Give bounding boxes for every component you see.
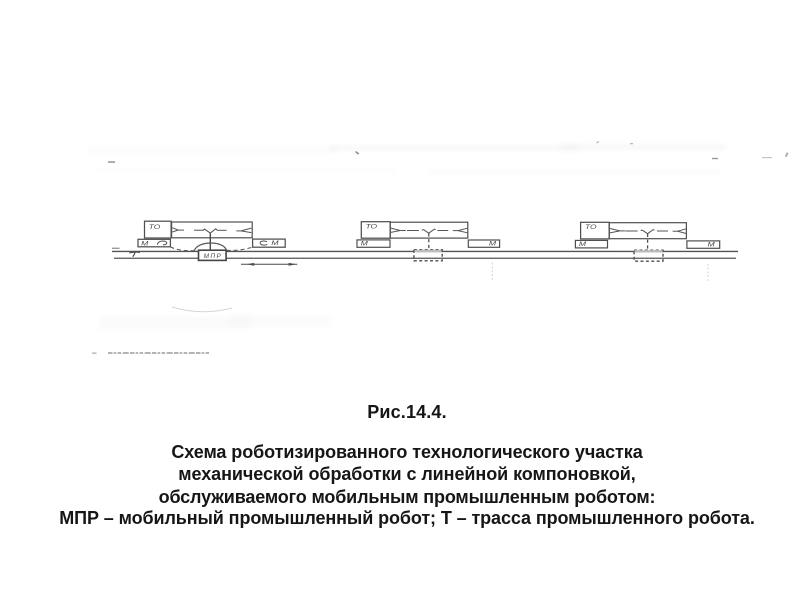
svg-text:М: М xyxy=(489,242,496,248)
svg-text:М: М xyxy=(271,241,278,247)
svg-text:М: М xyxy=(361,242,368,248)
svg-text:ТО: ТО xyxy=(149,224,161,231)
svg-text:М: М xyxy=(708,242,715,248)
svg-text:М: М xyxy=(141,241,148,247)
svg-text:ТО: ТО xyxy=(366,224,378,231)
svg-text:МПР: МПР xyxy=(204,253,223,260)
svg-text:М: М xyxy=(579,242,586,248)
svg-text:ТО: ТО xyxy=(585,224,597,231)
